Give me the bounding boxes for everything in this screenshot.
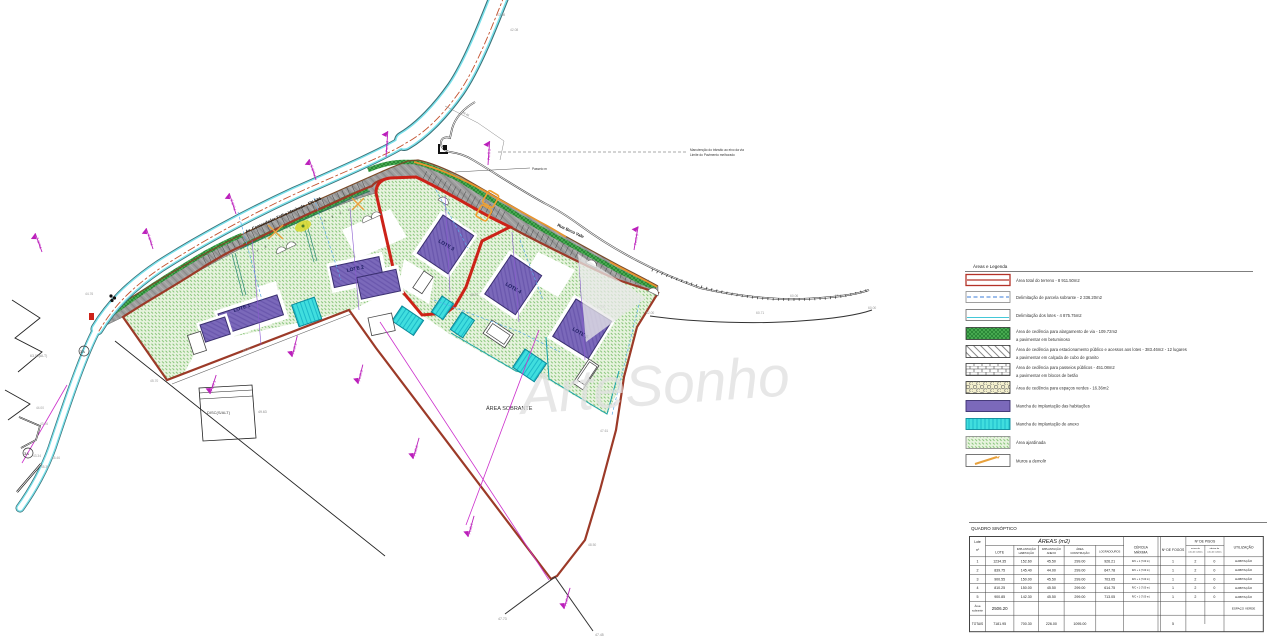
svg-text:HABITAÇÃO: HABITAÇÃO [1235, 585, 1253, 590]
svg-text:46.97: 46.97 [470, 293, 478, 297]
svg-text:703.05: 703.05 [1104, 577, 1115, 581]
svg-text:Limite do Pavimento melhorado: Limite do Pavimento melhorado [690, 153, 735, 157]
svg-text:abaixo da: abaixo da [1210, 548, 1220, 550]
svg-text:2506.20: 2506.20 [992, 606, 1008, 611]
svg-text:150.00: 150.00 [1021, 586, 1032, 590]
svg-text:1234.35: 1234.35 [993, 560, 1006, 564]
svg-text:1095.00: 1095.00 [1073, 622, 1086, 626]
svg-text:MÁXIMA: MÁXIMA [1134, 551, 1148, 555]
svg-text:Nº DE PISOS: Nº DE PISOS [1195, 540, 1216, 544]
svg-text:700.30: 700.30 [1021, 622, 1032, 626]
svg-text:Passeio m: Passeio m [532, 167, 547, 171]
svg-text:47.61: 47.61 [600, 429, 608, 433]
svg-text:Lote: Lote [974, 540, 981, 544]
svg-text:60.71: 60.71 [756, 311, 764, 315]
svg-text:HABITAÇÃO: HABITAÇÃO [1235, 558, 1253, 563]
svg-text:a pavimentar em calçada de cub: a pavimentar em calçada de cubo de grani… [1016, 355, 1099, 360]
svg-text:UTILIZAÇÃO: UTILIZAÇÃO [1234, 545, 1254, 550]
svg-text:47.73: 47.73 [498, 617, 507, 621]
svg-text:2: 2 [1194, 568, 1196, 572]
svg-text:Áreas e Legenda: Áreas e Legenda [973, 263, 1008, 269]
svg-text:Área: Área [975, 604, 981, 608]
svg-text:0: 0 [1213, 595, 1215, 599]
svg-text:299.00: 299.00 [1074, 577, 1085, 581]
svg-text:0: 0 [1213, 577, 1215, 581]
svg-text:R/C + 1 (7.00 m): R/C + 1 (7.00 m) [1132, 578, 1150, 581]
svg-text:299.00: 299.00 [1074, 560, 1085, 564]
svg-text:150.00: 150.00 [1021, 577, 1032, 581]
svg-text:Delimitação de parcela sobrant: Delimitação de parcela sobrante - 2 336.… [1016, 295, 1103, 300]
svg-text:HABITAÇÃO: HABITAÇÃO [1235, 594, 1253, 599]
svg-text:713.05: 713.05 [1104, 595, 1115, 599]
svg-text:45.35: 45.35 [41, 465, 49, 469]
svg-text:Área de cedência para alargame: Área de cedência para alargamento de via… [1016, 329, 1118, 334]
svg-text:R/C + 1 (7.00 m): R/C + 1 (7.00 m) [1132, 596, 1150, 599]
svg-text:45.50: 45.50 [1047, 560, 1056, 564]
svg-text:a pavimentar em betuminoso: a pavimentar em betuminoso [1016, 337, 1071, 342]
svg-text:1: 1 [1172, 568, 1174, 572]
svg-text:42.08: 42.08 [510, 28, 518, 32]
svg-text:a pavimentar em blocos de betã: a pavimentar em blocos de betão [1016, 373, 1079, 378]
svg-text:ANEXO: ANEXO [1047, 551, 1056, 555]
svg-text:2: 2 [977, 568, 979, 572]
svg-text:43.34: 43.34 [33, 454, 41, 458]
svg-text:0: 0 [1213, 560, 1215, 564]
svg-text:Área ajardinada: Área ajardinada [1016, 440, 1046, 445]
svg-text:4: 4 [977, 586, 979, 590]
svg-text:299.00: 299.00 [1074, 586, 1085, 590]
svg-text:614.75: 614.75 [1104, 586, 1115, 590]
svg-text:900.85: 900.85 [994, 595, 1005, 599]
svg-text:2: 2 [1194, 586, 1196, 590]
svg-text:142.30: 142.30 [1021, 595, 1032, 599]
svg-text:2: 2 [1194, 577, 1196, 581]
svg-text:Mancha de implantação das habi: Mancha de implantação das habitações [1016, 404, 1090, 409]
svg-text:sobrante: sobrante [972, 609, 983, 613]
svg-text:810.25: 810.25 [994, 586, 1005, 590]
svg-text:3A: 3A [24, 451, 29, 456]
svg-text:cota de soleira: cota de soleira [1207, 551, 1222, 554]
svg-text:926.21: 926.21 [1104, 560, 1115, 564]
svg-text:LOGRADOUROS: LOGRADOUROS [1099, 550, 1120, 554]
svg-text:Área de cedência para estacion: Área de cedência para estacionamento púb… [1016, 347, 1187, 352]
svg-text:Perfil 4: Perfil 4 [385, 141, 390, 152]
svg-text:44.76: 44.76 [85, 292, 93, 296]
svg-text:60.00: 60.00 [868, 306, 876, 310]
svg-text:0: 0 [1213, 586, 1215, 590]
svg-text:3: 3 [977, 577, 979, 581]
svg-text:CÉRCEA: CÉRCEA [1134, 545, 1149, 550]
svg-text:Área de cedência para espaços: Área de cedência para espaços verdes - 1… [1016, 386, 1109, 391]
svg-text:Mancha de implantação de anexo: Mancha de implantação de anexo [1016, 422, 1080, 427]
svg-text:1: 1 [1172, 586, 1174, 590]
svg-text:1: 1 [977, 560, 979, 564]
svg-text:QUADRO SINÓPTICO: QUADRO SINÓPTICO [971, 525, 1017, 531]
svg-text:839.75: 839.75 [994, 568, 1005, 572]
svg-text:R/C + 1 (7.00 m): R/C + 1 (7.00 m) [1132, 560, 1150, 563]
svg-text:Área total do terreno - 8 911.: Área total do terreno - 8 911.50m2 [1016, 278, 1080, 283]
svg-text:63.00(ALT): 63.00(ALT) [30, 354, 47, 358]
svg-text:47.45: 47.45 [595, 633, 604, 637]
svg-text:5: 5 [977, 595, 979, 599]
svg-text:49.63: 49.63 [258, 410, 267, 414]
svg-text:7181.95: 7181.95 [993, 622, 1006, 626]
svg-text:1: 1 [1172, 577, 1174, 581]
svg-text:62.00: 62.00 [646, 311, 654, 315]
svg-text:0: 0 [1213, 568, 1215, 572]
svg-text:HABITAÇÃO: HABITAÇÃO [1235, 567, 1253, 572]
svg-text:ESPAÇO VERDE: ESPAÇO VERDE [1232, 607, 1255, 611]
svg-text:acima da: acima da [1191, 548, 1201, 550]
svg-text:2: 2 [1194, 560, 1196, 564]
svg-text:45.46: 45.46 [52, 456, 60, 460]
svg-text:R/C + 1 (7.00 m): R/C + 1 (7.00 m) [1132, 569, 1150, 572]
svg-text:900.55: 900.55 [994, 577, 1005, 581]
svg-text:Manutenção do trânsito ao eixo: Manutenção do trânsito ao eixo da via [690, 148, 744, 152]
svg-text:44.00: 44.00 [1047, 568, 1056, 572]
svg-text:43.98: 43.98 [497, 13, 505, 17]
svg-text:R/C + 1 (7.00 m): R/C + 1 (7.00 m) [1132, 587, 1150, 590]
svg-text:45.70: 45.70 [150, 379, 158, 383]
svg-text:Perfil 5: Perfil 5 [487, 149, 492, 160]
svg-text:ÁREA: ÁREA [1076, 547, 1084, 551]
svg-text:60.06: 60.06 [790, 294, 798, 298]
svg-text:1: 1 [1172, 595, 1174, 599]
svg-text:LOTE: LOTE [995, 551, 1005, 555]
svg-text:55.75: 55.75 [835, 294, 843, 298]
svg-text:299.00: 299.00 [1074, 595, 1085, 599]
svg-text:43.76: 43.76 [40, 422, 48, 426]
svg-text:Nº DE FOGOS: Nº DE FOGOS [1162, 548, 1185, 552]
svg-text:226.00: 226.00 [1046, 622, 1057, 626]
svg-text:44.00: 44.00 [36, 406, 44, 410]
svg-text:TOTAIS: TOTAIS [972, 622, 983, 626]
svg-text:HABITAÇÃO: HABITAÇÃO [1235, 576, 1253, 581]
svg-text:DISC(S/ALT): DISC(S/ALT) [207, 410, 231, 415]
svg-text:ÁREAS (m2): ÁREAS (m2) [1037, 538, 1070, 545]
svg-text:Muros a demolir: Muros a demolir [1016, 459, 1047, 464]
svg-text:Área de cedência para passeios: Área de cedência para passeios públicos … [1016, 365, 1115, 370]
svg-text:Delimitação dos lotes - 4 875.: Delimitação dos lotes - 4 875.75m2 [1016, 313, 1082, 318]
svg-text:152.60: 152.60 [1021, 560, 1032, 564]
svg-text:45.50: 45.50 [1047, 577, 1056, 581]
svg-text:45.50: 45.50 [1047, 595, 1056, 599]
svg-text:3A: 3A [80, 349, 85, 354]
svg-text:647.78: 647.78 [1104, 568, 1115, 572]
svg-text:48.50: 48.50 [588, 543, 596, 547]
svg-text:1: 1 [1172, 560, 1174, 564]
svg-text:45.50: 45.50 [1047, 586, 1056, 590]
svg-text:299.00: 299.00 [1074, 568, 1085, 572]
svg-text:cota de soleira: cota de soleira [1188, 551, 1203, 554]
svg-text:2: 2 [1194, 595, 1196, 599]
svg-text:5: 5 [1172, 622, 1174, 626]
svg-text:145.40: 145.40 [1021, 568, 1032, 572]
